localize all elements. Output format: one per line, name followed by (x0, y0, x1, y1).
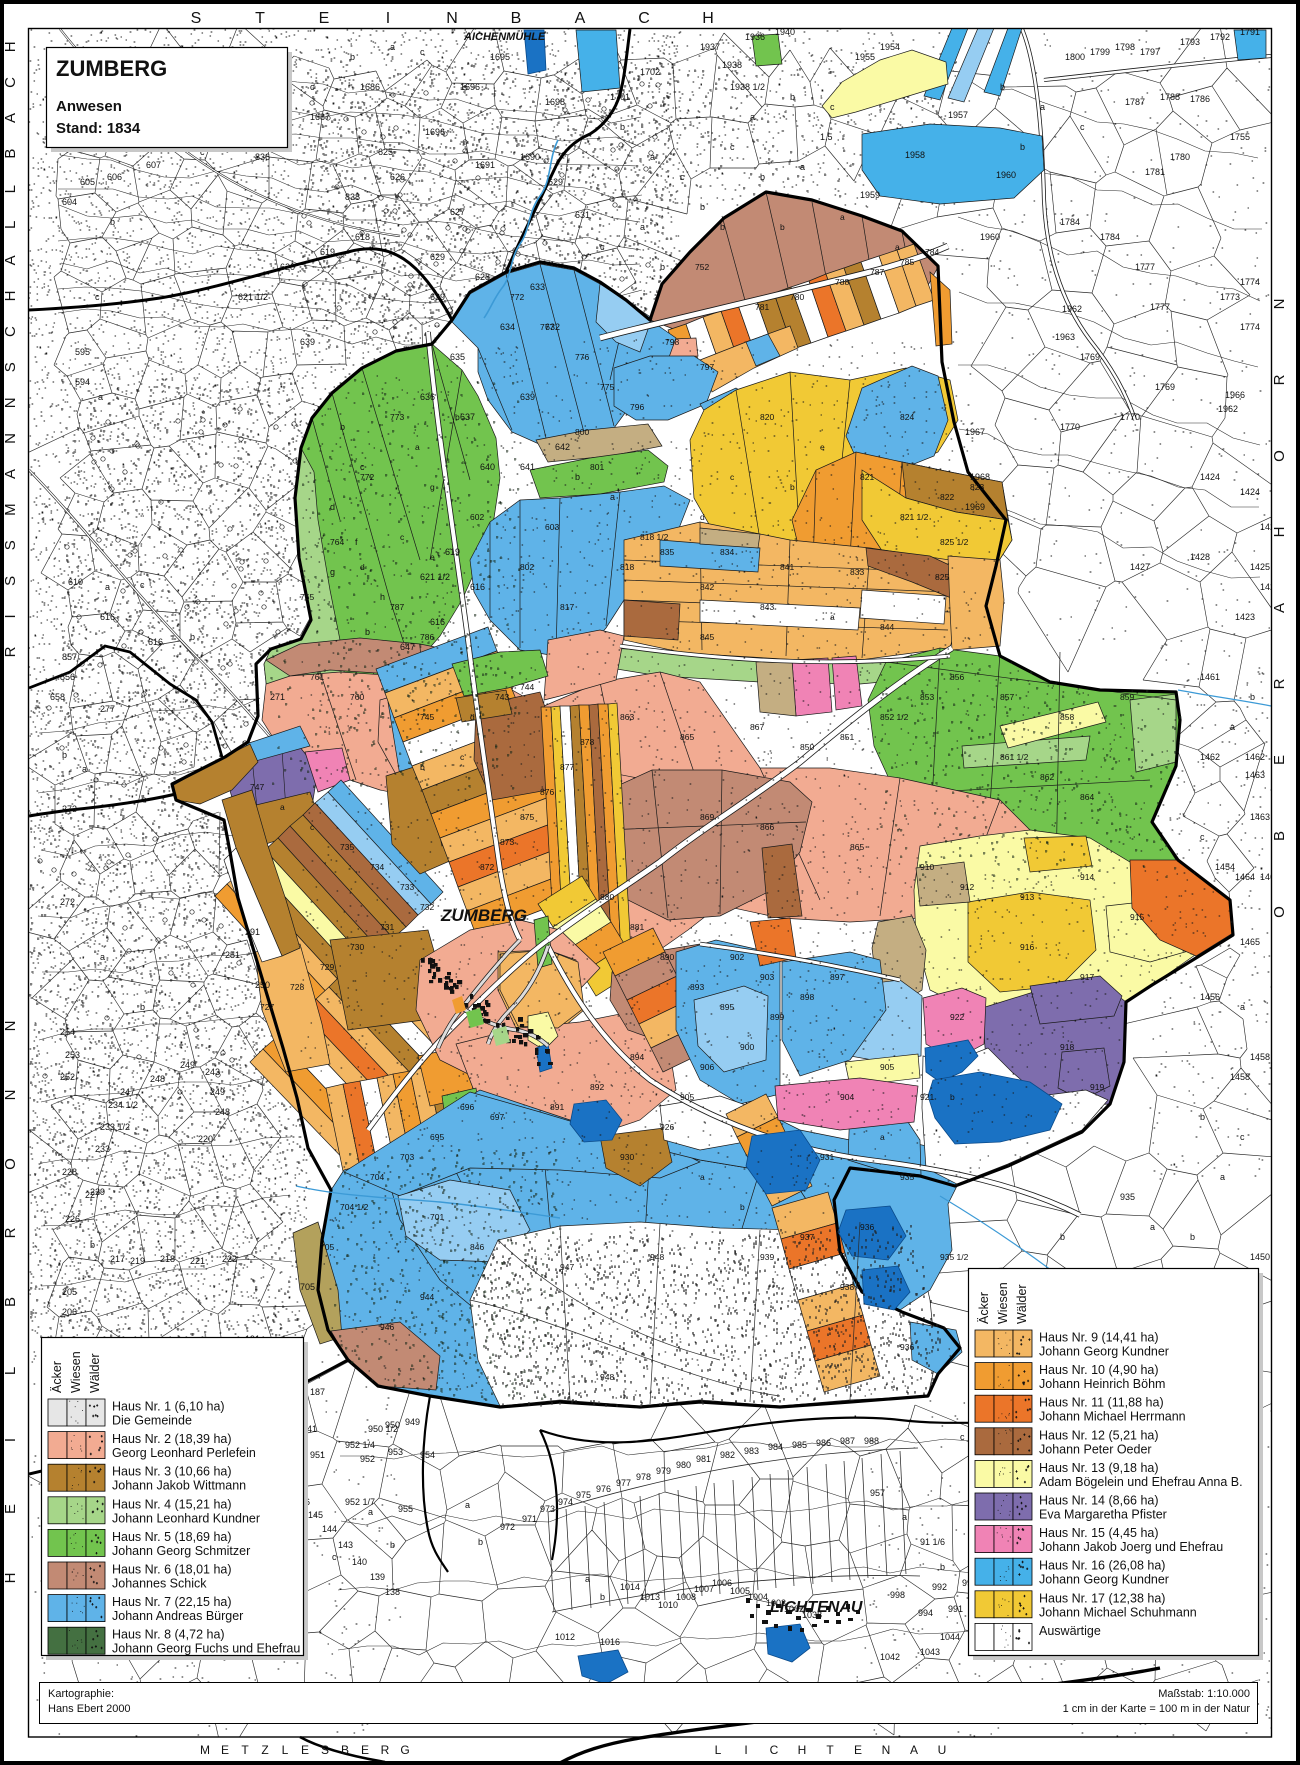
svg-text:747: 747 (250, 782, 264, 792)
svg-text:b: b (620, 122, 625, 132)
svg-text:863: 863 (620, 712, 634, 722)
svg-text:Haus Nr. 14 (8,66 ha): Haus Nr. 14 (8,66 ha) (1039, 1494, 1159, 1508)
svg-text:Johann Leonhard Kundner: Johann Leonhard Kundner (112, 1511, 260, 1525)
svg-text:H: H (2, 1573, 19, 1584)
svg-text:1462: 1462 (1200, 752, 1220, 762)
svg-text:c: c (1240, 1132, 1245, 1142)
svg-text:1690: 1690 (520, 152, 540, 162)
svg-text:221: 221 (190, 1256, 205, 1266)
svg-text:637: 637 (460, 412, 475, 422)
svg-text:a: a (368, 1507, 373, 1517)
svg-text:1044: 1044 (940, 1632, 960, 1642)
svg-text:a: a (700, 1172, 705, 1182)
svg-text:L: L (2, 221, 19, 229)
svg-text:A: A (575, 10, 586, 27)
svg-text:145: 145 (308, 1510, 323, 1520)
svg-text:S: S (2, 576, 19, 586)
svg-text:a: a (98, 392, 103, 402)
svg-text:R: R (1271, 374, 1288, 385)
svg-text:926: 926 (660, 1122, 674, 1132)
svg-text:1962: 1962 (1218, 404, 1238, 414)
svg-text:AICHENMÜHLE: AICHENMÜHLE (463, 30, 546, 43)
svg-text:a: a (650, 152, 655, 162)
svg-text:951: 951 (310, 1450, 325, 1460)
svg-text:L: L (282, 1743, 289, 1757)
svg-text:616: 616 (430, 617, 445, 627)
svg-text:610: 610 (68, 577, 83, 587)
svg-text:1428: 1428 (1190, 552, 1210, 562)
svg-text:982: 982 (720, 1450, 735, 1460)
svg-text:T: T (255, 10, 265, 27)
svg-text:781: 781 (755, 302, 769, 312)
svg-text:O: O (1271, 906, 1288, 918)
svg-text:696: 696 (460, 1102, 474, 1112)
svg-text:952 1/4: 952 1/4 (345, 1440, 375, 1450)
svg-text:919: 919 (1090, 1082, 1104, 1092)
svg-text:I: I (386, 10, 390, 27)
svg-text:c: c (600, 242, 605, 252)
svg-text:658: 658 (50, 692, 65, 702)
svg-text:796: 796 (630, 402, 644, 412)
svg-text:1462: 1462 (1245, 752, 1265, 762)
svg-text:B: B (341, 1743, 349, 1757)
svg-text:Z: Z (261, 1743, 268, 1757)
svg-text:Haus Nr. 4 (15,21 ha): Haus Nr. 4 (15,21 ha) (112, 1497, 232, 1511)
svg-text:893: 893 (690, 982, 704, 992)
svg-text:C: C (2, 77, 19, 88)
svg-text:c: c (730, 142, 735, 152)
svg-text:L: L (2, 185, 19, 193)
svg-text:891: 891 (550, 1102, 564, 1112)
svg-text:861 1/2: 861 1/2 (1000, 752, 1029, 762)
svg-text:1463: 1463 (1250, 812, 1270, 822)
svg-text:939: 939 (760, 1252, 774, 1262)
svg-text:867: 867 (750, 722, 764, 732)
svg-text:248: 248 (150, 1074, 165, 1084)
svg-text:a: a (1240, 1002, 1245, 1012)
svg-text:1461: 1461 (1200, 672, 1220, 682)
svg-text:Johann Jakob Joerg und Ehefra: Johann Jakob Joerg und Ehefrau (1039, 1540, 1223, 1554)
svg-text:H: H (702, 10, 714, 27)
svg-text:931: 931 (820, 1152, 834, 1162)
svg-text:975: 975 (576, 1490, 591, 1500)
svg-text:628: 628 (475, 272, 490, 282)
svg-text:786: 786 (420, 632, 434, 642)
svg-text:a: a (280, 802, 285, 812)
svg-text:Johann Georg Schmitzer: Johann Georg Schmitzer (112, 1544, 250, 1558)
svg-text:631: 631 (575, 210, 590, 220)
svg-text:1770: 1770 (1120, 412, 1140, 422)
svg-text:1464: 1464 (1235, 872, 1255, 882)
svg-text:E: E (361, 1743, 369, 1757)
svg-text:635: 635 (450, 352, 465, 362)
svg-text:b: b (700, 202, 705, 212)
svg-text:M: M (200, 1743, 210, 1757)
svg-text:b: b (760, 172, 765, 182)
svg-text:594: 594 (75, 377, 90, 387)
svg-text:251: 251 (225, 950, 240, 960)
svg-text:877: 877 (560, 762, 574, 772)
svg-text:N: N (446, 10, 458, 27)
svg-text:822: 822 (940, 492, 954, 502)
svg-text:Johann Michael Herrmann: Johann Michael Herrmann (1039, 1410, 1186, 1424)
svg-text:1014: 1014 (620, 1582, 640, 1592)
svg-text:c: c (830, 102, 835, 112)
svg-text:a: a (1220, 1172, 1225, 1182)
svg-text:833: 833 (850, 567, 864, 577)
svg-text:b: b (740, 1202, 745, 1212)
svg-text:143: 143 (338, 1540, 353, 1550)
svg-text:Johannes Schick: Johannes Schick (112, 1577, 207, 1591)
svg-text:821 1/2: 821 1/2 (900, 512, 929, 522)
svg-text:1695: 1695 (490, 52, 510, 62)
svg-text:836: 836 (255, 152, 270, 162)
svg-text:d: d (360, 562, 365, 572)
svg-text:823: 823 (970, 482, 984, 492)
svg-text:857: 857 (1000, 692, 1014, 702)
svg-text:1954: 1954 (880, 42, 900, 52)
svg-text:252: 252 (60, 1072, 75, 1082)
svg-text:1938: 1938 (722, 60, 742, 70)
svg-text:954: 954 (420, 1450, 435, 1460)
svg-text:910: 910 (920, 862, 934, 872)
svg-text:620: 620 (280, 262, 295, 272)
svg-text:1425: 1425 (1250, 562, 1270, 572)
svg-text:625: 625 (378, 147, 393, 157)
svg-text:1043: 1043 (920, 1647, 940, 1657)
svg-text:E: E (1271, 755, 1288, 765)
svg-text:B: B (1271, 831, 1288, 841)
svg-text:935 1/2: 935 1/2 (940, 1252, 969, 1262)
svg-text:a: a (585, 1574, 590, 1584)
svg-text:c: c (680, 172, 685, 182)
svg-text:865: 865 (680, 732, 694, 742)
svg-text:206: 206 (62, 1307, 77, 1317)
svg-text:935: 935 (1120, 1192, 1135, 1202)
svg-text:616: 616 (148, 637, 163, 647)
svg-text:639: 639 (520, 392, 535, 402)
svg-text:994: 994 (918, 1608, 933, 1618)
svg-text:825 1/2: 825 1/2 (940, 537, 969, 547)
svg-text:144: 144 (322, 1524, 337, 1534)
svg-text:1696: 1696 (460, 82, 480, 92)
svg-text:U: U (938, 1743, 947, 1757)
svg-text:g: g (330, 567, 335, 577)
svg-text:Äcker: Äcker (50, 1361, 64, 1393)
svg-text:219: 219 (130, 1256, 145, 1266)
svg-text:H: H (2, 291, 19, 302)
svg-text:641: 641 (520, 462, 535, 472)
svg-text:243: 243 (205, 1067, 220, 1077)
svg-text:1958: 1958 (905, 150, 925, 160)
svg-text:249: 249 (180, 1060, 195, 1070)
svg-text:843: 843 (760, 602, 774, 612)
svg-text:784: 784 (925, 247, 939, 257)
svg-text:801: 801 (590, 462, 604, 472)
svg-text:1780: 1780 (1170, 152, 1190, 162)
svg-text:595: 595 (75, 347, 90, 357)
svg-text:952: 952 (360, 1454, 375, 1464)
svg-text:248: 248 (215, 1107, 230, 1117)
svg-text:c: c (1080, 122, 1085, 132)
svg-text:621 1/2: 621 1/2 (420, 572, 450, 582)
svg-text:787: 787 (390, 602, 404, 612)
svg-text:c: c (960, 1432, 965, 1442)
svg-text:1702: 1702 (640, 67, 660, 77)
svg-text:981: 981 (696, 1454, 711, 1464)
svg-text:998: 998 (890, 1590, 905, 1600)
svg-text:818 1/2: 818 1/2 (640, 532, 669, 542)
svg-text:1963: 1963 (1055, 332, 1075, 342)
svg-text:618: 618 (355, 232, 370, 242)
svg-text:743: 743 (495, 692, 509, 702)
svg-text:1 cm in der Karte = 100 m in d: 1 cm in der Karte = 100 m in der Natur (1063, 1703, 1251, 1715)
svg-text:838: 838 (345, 192, 360, 202)
svg-text:1773: 1773 (1220, 292, 1240, 302)
svg-text:903: 903 (760, 972, 774, 982)
svg-text:Johann Michael Schuhmann: Johann Michael Schuhmann (1039, 1605, 1197, 1619)
svg-text:705: 705 (320, 1242, 334, 1252)
svg-text:N: N (2, 397, 19, 408)
svg-text:Anwesen: Anwesen (56, 98, 122, 115)
svg-text:1774: 1774 (1240, 322, 1260, 332)
svg-text:640: 640 (480, 462, 495, 472)
svg-text:1696: 1696 (425, 127, 445, 137)
svg-text:902: 902 (730, 952, 744, 962)
svg-text:b: b (1190, 1232, 1195, 1242)
svg-text:a: a (895, 242, 900, 252)
svg-text:845: 845 (700, 632, 714, 642)
svg-text:744: 744 (520, 682, 534, 692)
svg-text:859: 859 (1120, 692, 1134, 702)
svg-text:1755: 1755 (1230, 132, 1250, 142)
svg-text:1960: 1960 (980, 232, 1000, 242)
svg-text:1038: 1038 (802, 1610, 822, 1620)
svg-text:775: 775 (600, 382, 614, 392)
svg-text:727: 727 (260, 1002, 274, 1012)
svg-text:a: a (640, 222, 645, 232)
svg-text:988: 988 (864, 1436, 879, 1446)
svg-text:Wiesen: Wiesen (69, 1351, 83, 1393)
svg-text:857: 857 (62, 652, 77, 662)
svg-text:761: 761 (310, 672, 324, 682)
svg-text:1786: 1786 (1190, 94, 1210, 104)
svg-text:1937: 1937 (700, 42, 720, 52)
svg-text:918: 918 (1060, 1042, 1074, 1052)
svg-text:835: 835 (660, 547, 674, 557)
svg-text:291: 291 (245, 927, 260, 937)
svg-text:1465: 1465 (1240, 937, 1260, 947)
svg-text:Haus Nr. 2 (18,39 ha): Haus Nr. 2 (18,39 ha) (112, 1432, 232, 1446)
svg-text:626: 626 (390, 172, 405, 182)
svg-text:938: 938 (840, 1282, 854, 1292)
svg-text:a: a (610, 492, 615, 502)
svg-text:e: e (820, 442, 825, 452)
svg-text:T: T (241, 1743, 249, 1757)
svg-text:729: 729 (320, 962, 334, 972)
svg-text:Johann Andreas Bürger: Johann Andreas Bürger (112, 1609, 243, 1623)
svg-text:T: T (826, 1743, 834, 1757)
svg-text:Hans Ebert 2000: Hans Ebert 2000 (48, 1703, 131, 1715)
svg-text:Haus Nr. 1 (6,10 ha): Haus Nr. 1 (6,10 ha) (112, 1400, 225, 1414)
svg-text:730: 730 (350, 942, 364, 952)
svg-text:b: b (720, 222, 725, 232)
svg-text:Wiesen: Wiesen (996, 1282, 1010, 1324)
svg-text:1781: 1781 (1145, 167, 1165, 177)
svg-text:Maßstab: 1:10.000: Maßstab: 1:10.000 (1158, 1688, 1250, 1700)
svg-text:234 1/2: 234 1/2 (108, 1100, 138, 1110)
svg-text:S: S (321, 1743, 329, 1757)
svg-text:701: 701 (430, 1212, 444, 1222)
svg-text:b: b (780, 222, 785, 232)
svg-text:787: 787 (870, 267, 884, 277)
svg-text:R: R (1271, 678, 1288, 689)
svg-text:Haus Nr. 7 (22,15 ha): Haus Nr. 7 (22,15 ha) (112, 1595, 232, 1609)
svg-text:b: b (110, 217, 115, 227)
svg-text:834: 834 (720, 547, 734, 557)
svg-text:634: 634 (500, 322, 515, 332)
svg-text:L: L (2, 1367, 19, 1375)
svg-text:H: H (1271, 527, 1288, 538)
svg-text:992: 992 (932, 1582, 947, 1592)
svg-text:b: b (1250, 692, 1255, 702)
svg-text:802: 802 (520, 562, 534, 572)
svg-text:b: b (575, 472, 580, 482)
svg-text:872: 872 (480, 862, 494, 872)
svg-text:880: 880 (600, 892, 614, 902)
svg-text:697: 697 (490, 1112, 504, 1122)
svg-text:765: 765 (300, 592, 314, 602)
svg-text:1966: 1966 (1225, 390, 1245, 400)
svg-text:b: b (62, 750, 67, 760)
svg-text:978: 978 (636, 1472, 651, 1482)
svg-text:226: 226 (65, 1214, 80, 1224)
svg-text:1691: 1691 (475, 160, 495, 170)
svg-text:a: a (840, 212, 845, 222)
svg-text:A: A (2, 469, 19, 479)
svg-text:b: b (365, 627, 370, 637)
svg-text:875: 875 (520, 812, 534, 822)
svg-text:986: 986 (816, 1438, 831, 1448)
svg-text:952 1/7: 952 1/7 (345, 1497, 375, 1507)
svg-text:957: 957 (870, 1488, 885, 1498)
svg-text:916: 916 (1020, 942, 1034, 952)
svg-text:1798: 1798 (1115, 42, 1135, 52)
svg-text:772: 772 (510, 292, 524, 302)
svg-text:Adam Bögelein und Ehefrau Anna: Adam Bögelein und Ehefrau Anna B. (1039, 1475, 1243, 1489)
svg-text:B: B (511, 10, 522, 27)
svg-text:980: 980 (676, 1460, 691, 1470)
svg-text:948: 948 (650, 1252, 664, 1262)
svg-text:b: b (950, 1092, 955, 1102)
svg-text:Äcker: Äcker (977, 1292, 991, 1324)
svg-text:c: c (332, 1552, 337, 1562)
svg-text:639: 639 (430, 292, 445, 302)
svg-text:O: O (1271, 450, 1288, 462)
svg-text:a: a (800, 162, 805, 172)
svg-text:731: 731 (380, 922, 394, 932)
svg-text:272: 272 (60, 897, 75, 907)
svg-text:1800: 1800 (1065, 52, 1085, 62)
svg-text:735: 735 (340, 842, 354, 852)
svg-text:983: 983 (744, 1446, 759, 1456)
svg-text:905: 905 (880, 1062, 894, 1072)
svg-text:247: 247 (120, 1087, 135, 1097)
svg-text:a: a (750, 112, 755, 122)
svg-text:a: a (1230, 722, 1235, 732)
svg-text:976: 976 (596, 1484, 611, 1494)
svg-text:R: R (2, 1227, 19, 1238)
svg-text:Johann Peter Oeder: Johann Peter Oeder (1039, 1442, 1152, 1456)
svg-text:973: 973 (540, 1504, 555, 1514)
svg-text:869: 869 (700, 812, 714, 822)
svg-text:950: 950 (385, 1420, 400, 1430)
svg-text:842: 842 (700, 582, 714, 592)
svg-text:Wälder: Wälder (1015, 1284, 1029, 1324)
svg-text:N: N (1271, 299, 1288, 310)
svg-text:745: 745 (420, 712, 434, 722)
svg-text:972: 972 (500, 1522, 515, 1532)
svg-text:N: N (2, 1090, 19, 1101)
svg-text:c: c (310, 82, 315, 92)
svg-text:777: 777 (540, 322, 554, 332)
svg-text:946: 946 (380, 1322, 394, 1332)
svg-text:Johann Heinrich Böhm: Johann Heinrich Böhm (1039, 1377, 1165, 1391)
svg-text:Haus Nr. 11 (11,88 ha): Haus Nr. 11 (11,88 ha) (1039, 1396, 1164, 1410)
svg-text:991: 991 (948, 1604, 963, 1614)
svg-text:606: 606 (107, 172, 122, 182)
svg-text:b: b (140, 1002, 145, 1012)
svg-text:1957: 1957 (948, 110, 968, 120)
svg-text:1458: 1458 (1230, 1072, 1250, 1082)
svg-text:Eva Margaretha Pfister: Eva Margaretha Pfister (1039, 1508, 1167, 1522)
svg-text:705: 705 (300, 1282, 315, 1292)
svg-text:Haus Nr. 10 (4,90 ha): Haus Nr. 10 (4,90 ha) (1039, 1363, 1159, 1377)
svg-text:a: a (100, 952, 105, 962)
svg-text:734: 734 (370, 862, 384, 872)
svg-text:851: 851 (840, 732, 854, 742)
svg-text:1424: 1424 (1200, 472, 1220, 482)
svg-text:974: 974 (558, 1497, 573, 1507)
svg-text:824: 824 (900, 412, 914, 422)
svg-text:936: 936 (860, 1222, 874, 1232)
svg-text:E: E (854, 1743, 862, 1757)
svg-text:704: 704 (370, 1172, 384, 1182)
svg-text:a: a (1150, 1222, 1155, 1232)
svg-text:b: b (90, 1240, 95, 1250)
svg-text:a: a (105, 582, 110, 592)
svg-text:G: G (400, 1743, 409, 1757)
svg-text:912: 912 (960, 882, 974, 892)
svg-text:752: 752 (695, 262, 709, 272)
svg-text:605: 605 (80, 177, 95, 187)
svg-text:844: 844 (880, 622, 894, 632)
svg-text:I: I (2, 1438, 19, 1442)
svg-text:a: a (465, 1500, 470, 1510)
svg-text:b: b (1000, 82, 1005, 92)
svg-text:b: b (1020, 142, 1025, 152)
svg-text:841: 841 (780, 562, 794, 572)
svg-text:604: 604 (62, 197, 77, 207)
svg-text:Die Gemeinde: Die Gemeinde (112, 1414, 192, 1428)
svg-text:953: 953 (388, 1447, 403, 1457)
svg-text:1788: 1788 (1160, 92, 1180, 102)
svg-text:1427: 1427 (1130, 562, 1150, 572)
svg-text:d: d (700, 512, 705, 522)
svg-text:140: 140 (352, 1557, 367, 1567)
svg-text:1968: 1968 (970, 472, 990, 482)
svg-text:218: 218 (160, 1254, 175, 1264)
